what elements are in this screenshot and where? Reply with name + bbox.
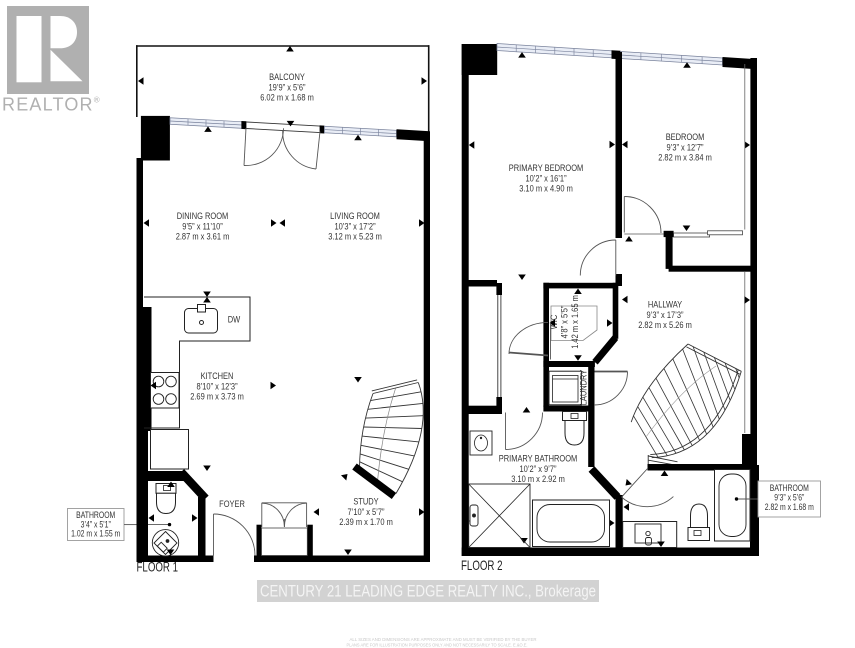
svg-text:FLOOR 1: FLOOR 1 [137, 560, 179, 575]
svg-text:DW: DW [228, 314, 241, 325]
svg-text:CENTURY 21 LEADING EDGE REALTY: CENTURY 21 LEADING EDGE REALTY INC., Bro… [260, 583, 596, 601]
svg-text:3.12 m x 5.23 m: 3.12 m x 5.23 m [328, 231, 382, 242]
svg-text:BATHROOM: BATHROOM [770, 483, 809, 493]
svg-text:6.02 m x 1.68 m: 6.02 m x 1.68 m [260, 92, 314, 103]
svg-text:1.42 m x 1.65 m: 1.42 m x 1.65 m [569, 295, 580, 349]
svg-text:1.02 m x 1.55 m: 1.02 m x 1.55 m [71, 529, 120, 539]
svg-text:REALTOR®: REALTOR® [2, 95, 101, 115]
svg-text:9’3” x 5’6”: 9’3” x 5’6” [774, 493, 804, 503]
svg-text:FLOOR 2: FLOOR 2 [461, 559, 503, 574]
svg-text:2.39 m x 1.70 m: 2.39 m x 1.70 m [339, 516, 393, 527]
svg-text:2.82 m x 5.26 m: 2.82 m x 5.26 m [638, 319, 692, 330]
svg-text:2.87 m x 3.61 m: 2.87 m x 3.61 m [176, 231, 230, 242]
svg-text:2.82 m x 1.68 m: 2.82 m x 1.68 m [765, 502, 814, 512]
svg-text:4’8” x 5’5”: 4’8” x 5’5” [559, 305, 570, 338]
svg-text:LAUNDRY: LAUNDRY [578, 369, 589, 405]
svg-text:2.69 m x 3.73 m: 2.69 m x 3.73 m [190, 391, 244, 402]
svg-text:FOYER: FOYER [219, 498, 245, 509]
svg-text:PLANS ARE FOR ILLUSTRATION PUR: PLANS ARE FOR ILLUSTRATION PURPOSES ONLY… [347, 643, 528, 648]
svg-text:ALL SIZES AND DIMENSIONS ARE A: ALL SIZES AND DIMENSIONS ARE APPROXIMATE… [350, 637, 538, 642]
svg-text:2.82 m x 3.84 m: 2.82 m x 3.84 m [658, 152, 712, 163]
svg-text:3.10 m x 2.92 m: 3.10 m x 2.92 m [511, 473, 565, 484]
svg-text:3.10 m x 4.90 m: 3.10 m x 4.90 m [519, 183, 573, 194]
